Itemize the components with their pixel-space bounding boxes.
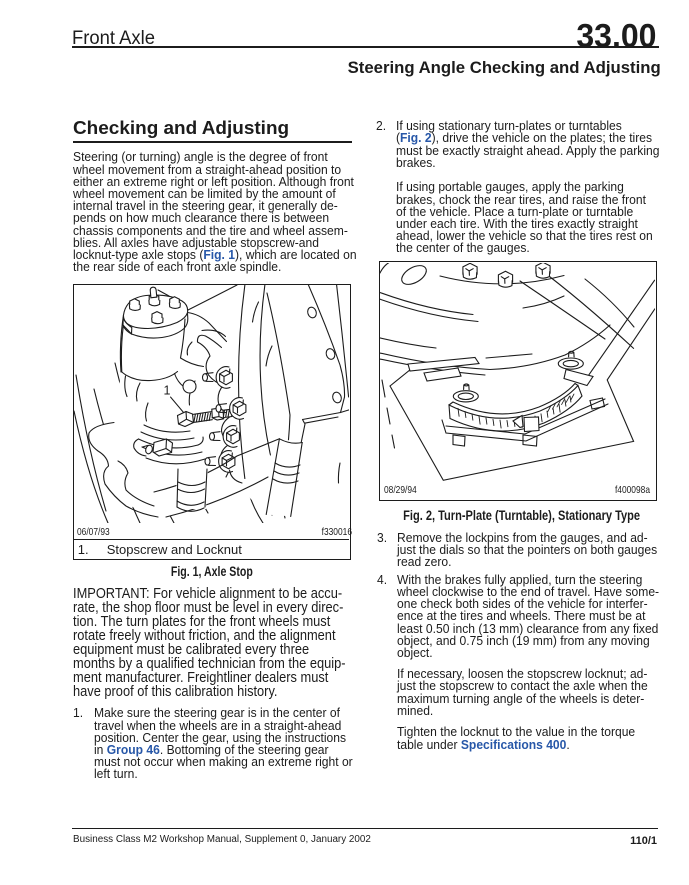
svg-text:1: 1 (164, 384, 171, 398)
